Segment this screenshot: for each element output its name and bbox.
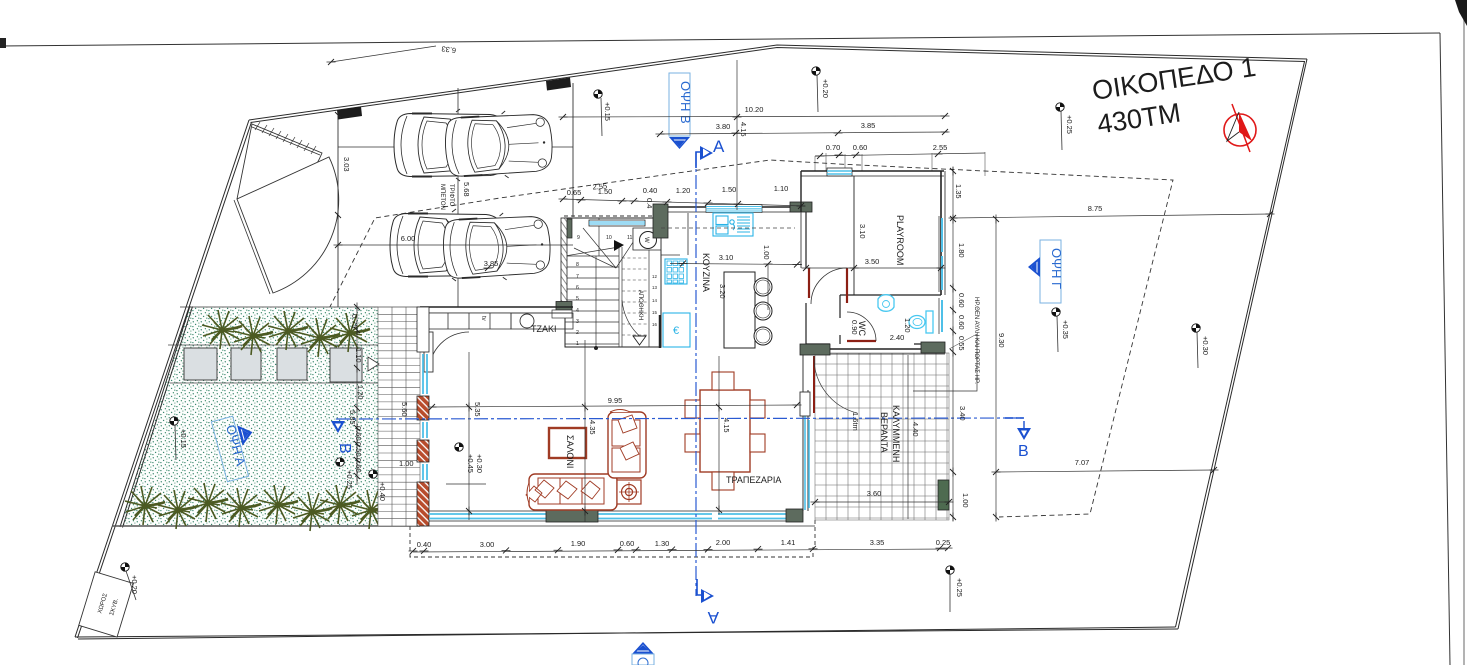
svg-text:13: 13 xyxy=(652,285,657,290)
svg-text:+0.25: +0.25 xyxy=(1065,115,1074,134)
svg-text:ΜΠΕΤΟΝ: ΜΠΕΤΟΝ xyxy=(439,184,445,210)
svg-text:4.35: 4.35 xyxy=(588,420,597,435)
svg-text:A: A xyxy=(707,608,719,627)
svg-text:3.50: 3.50 xyxy=(865,257,880,266)
svg-text:1.6tm: 1.6tm xyxy=(851,412,860,431)
svg-text:+0.40: +0.40 xyxy=(378,482,387,501)
svg-text:6: 6 xyxy=(576,285,579,291)
svg-text:3.10: 3.10 xyxy=(858,224,867,239)
svg-text:0.75: 0.75 xyxy=(350,314,359,329)
svg-text:+0.15: +0.15 xyxy=(179,429,188,448)
svg-text:8.75: 8.75 xyxy=(1088,204,1103,213)
svg-text:9.30: 9.30 xyxy=(997,333,1006,348)
svg-text:2.55: 2.55 xyxy=(592,182,607,192)
svg-text:8: 8 xyxy=(576,262,579,268)
svg-text:ΤΖΑΚΙ: ΤΖΑΚΙ xyxy=(531,324,557,334)
svg-text:0.4: 0.4 xyxy=(645,198,654,208)
svg-text:0.50: 0.50 xyxy=(354,442,363,457)
svg-text:2.00: 2.00 xyxy=(716,538,731,547)
svg-text:7: 7 xyxy=(576,274,579,280)
svg-text:0.40: 0.40 xyxy=(643,186,658,195)
svg-text:3.85: 3.85 xyxy=(484,259,499,268)
svg-text:1.20: 1.20 xyxy=(676,186,691,195)
svg-text:1.10: 1.10 xyxy=(354,348,363,363)
svg-text:16: 16 xyxy=(652,322,657,327)
svg-text:9: 9 xyxy=(577,235,580,241)
svg-text:1.20: 1.20 xyxy=(903,318,912,333)
svg-text:9.95: 9.95 xyxy=(608,396,623,405)
svg-text:3.20: 3.20 xyxy=(718,284,727,299)
svg-text:+0.15: +0.15 xyxy=(603,102,612,121)
svg-text:+0.35: +0.35 xyxy=(1061,320,1070,339)
svg-text:3.10: 3.10 xyxy=(719,253,734,262)
svg-text:3: 3 xyxy=(576,319,579,325)
svg-text:1: 1 xyxy=(576,341,579,347)
svg-text:3.85: 3.85 xyxy=(861,121,876,130)
svg-text:+0.25: +0.25 xyxy=(345,470,354,489)
svg-text:ΚΟΥΖΙΝΑ: ΚΟΥΖΙΝΑ xyxy=(701,253,711,292)
svg-text:0.60: 0.60 xyxy=(354,426,363,441)
svg-text:0.60: 0.60 xyxy=(853,143,868,152)
svg-text:€: € xyxy=(673,325,679,337)
svg-text:0.55: 0.55 xyxy=(957,336,966,351)
svg-text:5.68: 5.68 xyxy=(462,182,471,197)
svg-text:2.55: 2.55 xyxy=(933,143,948,152)
svg-text:4: 4 xyxy=(576,308,579,314)
svg-text:1.35: 1.35 xyxy=(954,184,963,199)
svg-text:5.85: 5.85 xyxy=(348,410,357,425)
svg-text:+0.20: +0.20 xyxy=(821,79,830,98)
svg-text:1.90: 1.90 xyxy=(571,539,586,548)
svg-text:0.40: 0.40 xyxy=(417,540,432,549)
svg-text:1.00: 1.00 xyxy=(399,459,414,468)
svg-text:ΟΨΗ Γ: ΟΨΗ Γ xyxy=(1049,248,1064,289)
svg-text:3.35: 3.35 xyxy=(870,538,885,547)
svg-text:1.20: 1.20 xyxy=(356,385,365,400)
svg-text:+0.25: +0.25 xyxy=(955,578,964,597)
svg-text:3.40: 3.40 xyxy=(958,406,967,421)
svg-text:5.35: 5.35 xyxy=(473,402,482,417)
svg-text:A: A xyxy=(713,137,725,156)
svg-text:B: B xyxy=(1018,443,1029,460)
svg-text:12: 12 xyxy=(652,274,657,279)
svg-text:3.60: 3.60 xyxy=(867,489,882,498)
svg-text:B: B xyxy=(336,443,353,454)
svg-text:ΟΨΗ Β: ΟΨΗ Β xyxy=(678,81,693,124)
svg-text:3.03: 3.03 xyxy=(342,157,351,172)
svg-text:2: 2 xyxy=(576,330,579,336)
svg-text:1.00: 1.00 xyxy=(762,245,771,260)
svg-text:ΒΕΡΑΝΤΑ: ΒΕΡΑΝΤΑ xyxy=(879,412,889,453)
svg-text:3.00: 3.00 xyxy=(480,540,495,549)
svg-text:PLAYROOM: PLAYROOM xyxy=(895,215,905,265)
svg-text:5.60: 5.60 xyxy=(400,402,409,417)
svg-text:1.41: 1.41 xyxy=(781,538,796,547)
svg-text:14: 14 xyxy=(652,298,657,303)
svg-text:0.60: 0.60 xyxy=(957,315,966,330)
svg-text:ΗΡ.ΘΕΝ ΑΥΛΗ ΚΑΙ ΠΟΡΤΑΣ ΗΡ.: ΗΡ.ΘΕΝ ΑΥΛΗ ΚΑΙ ΠΟΡΤΑΣ ΗΡ. xyxy=(973,297,979,384)
svg-text:2.40: 2.40 xyxy=(890,333,905,342)
svg-text:10: 10 xyxy=(606,235,612,241)
svg-text:1.10: 1.10 xyxy=(774,184,789,193)
svg-text:15: 15 xyxy=(652,310,657,315)
svg-text:7.07: 7.07 xyxy=(1075,458,1090,467)
svg-text:4.40: 4.40 xyxy=(911,422,920,437)
svg-text:3.80: 3.80 xyxy=(716,122,731,131)
svg-text:0.70: 0.70 xyxy=(826,143,841,152)
svg-text:10.20: 10.20 xyxy=(745,105,764,114)
svg-text:W: W xyxy=(643,237,649,243)
svg-text:1.30: 1.30 xyxy=(655,539,670,548)
svg-text:0.25: 0.25 xyxy=(936,538,951,547)
svg-text:1.50: 1.50 xyxy=(722,185,737,194)
svg-text:5: 5 xyxy=(576,296,579,302)
svg-text:4.15: 4.15 xyxy=(739,122,748,137)
svg-text:0.65: 0.65 xyxy=(567,188,582,197)
svg-text:0.60: 0.60 xyxy=(620,539,635,548)
svg-text:1.80: 1.80 xyxy=(957,243,966,258)
svg-text:tv: tv xyxy=(480,316,486,321)
svg-text:+0.45: +0.45 xyxy=(466,454,475,473)
svg-text:1.00: 1.00 xyxy=(961,493,970,508)
svg-text:11: 11 xyxy=(627,235,632,241)
svg-text:ΤΡΑΠΕΖΑΡΙΑ: ΤΡΑΠΕΖΑΡΙΑ xyxy=(726,475,781,485)
svg-text:0.60: 0.60 xyxy=(957,293,966,308)
svg-text:0.60: 0.60 xyxy=(354,458,363,473)
svg-text:ΤΡΙΦΤΟ: ΤΡΙΦΤΟ xyxy=(448,184,454,207)
svg-text:6.00: 6.00 xyxy=(401,234,416,243)
svg-text:4.15: 4.15 xyxy=(722,418,731,433)
svg-text:ΑΠΟΘΗΚΗ: ΑΠΟΘΗΚΗ xyxy=(637,290,643,320)
svg-text:+0.30: +0.30 xyxy=(1201,336,1210,355)
svg-text:+0.30: +0.30 xyxy=(475,454,484,473)
svg-text:ΣΑΛΟΝΙ: ΣΑΛΟΝΙ xyxy=(565,435,575,468)
svg-text:ΚΑΛΥΜΜΕΝΗ: ΚΑΛΥΜΜΕΝΗ xyxy=(891,405,901,462)
svg-text:+0.20: +0.20 xyxy=(130,575,139,594)
svg-text:WC: WC xyxy=(857,321,867,336)
